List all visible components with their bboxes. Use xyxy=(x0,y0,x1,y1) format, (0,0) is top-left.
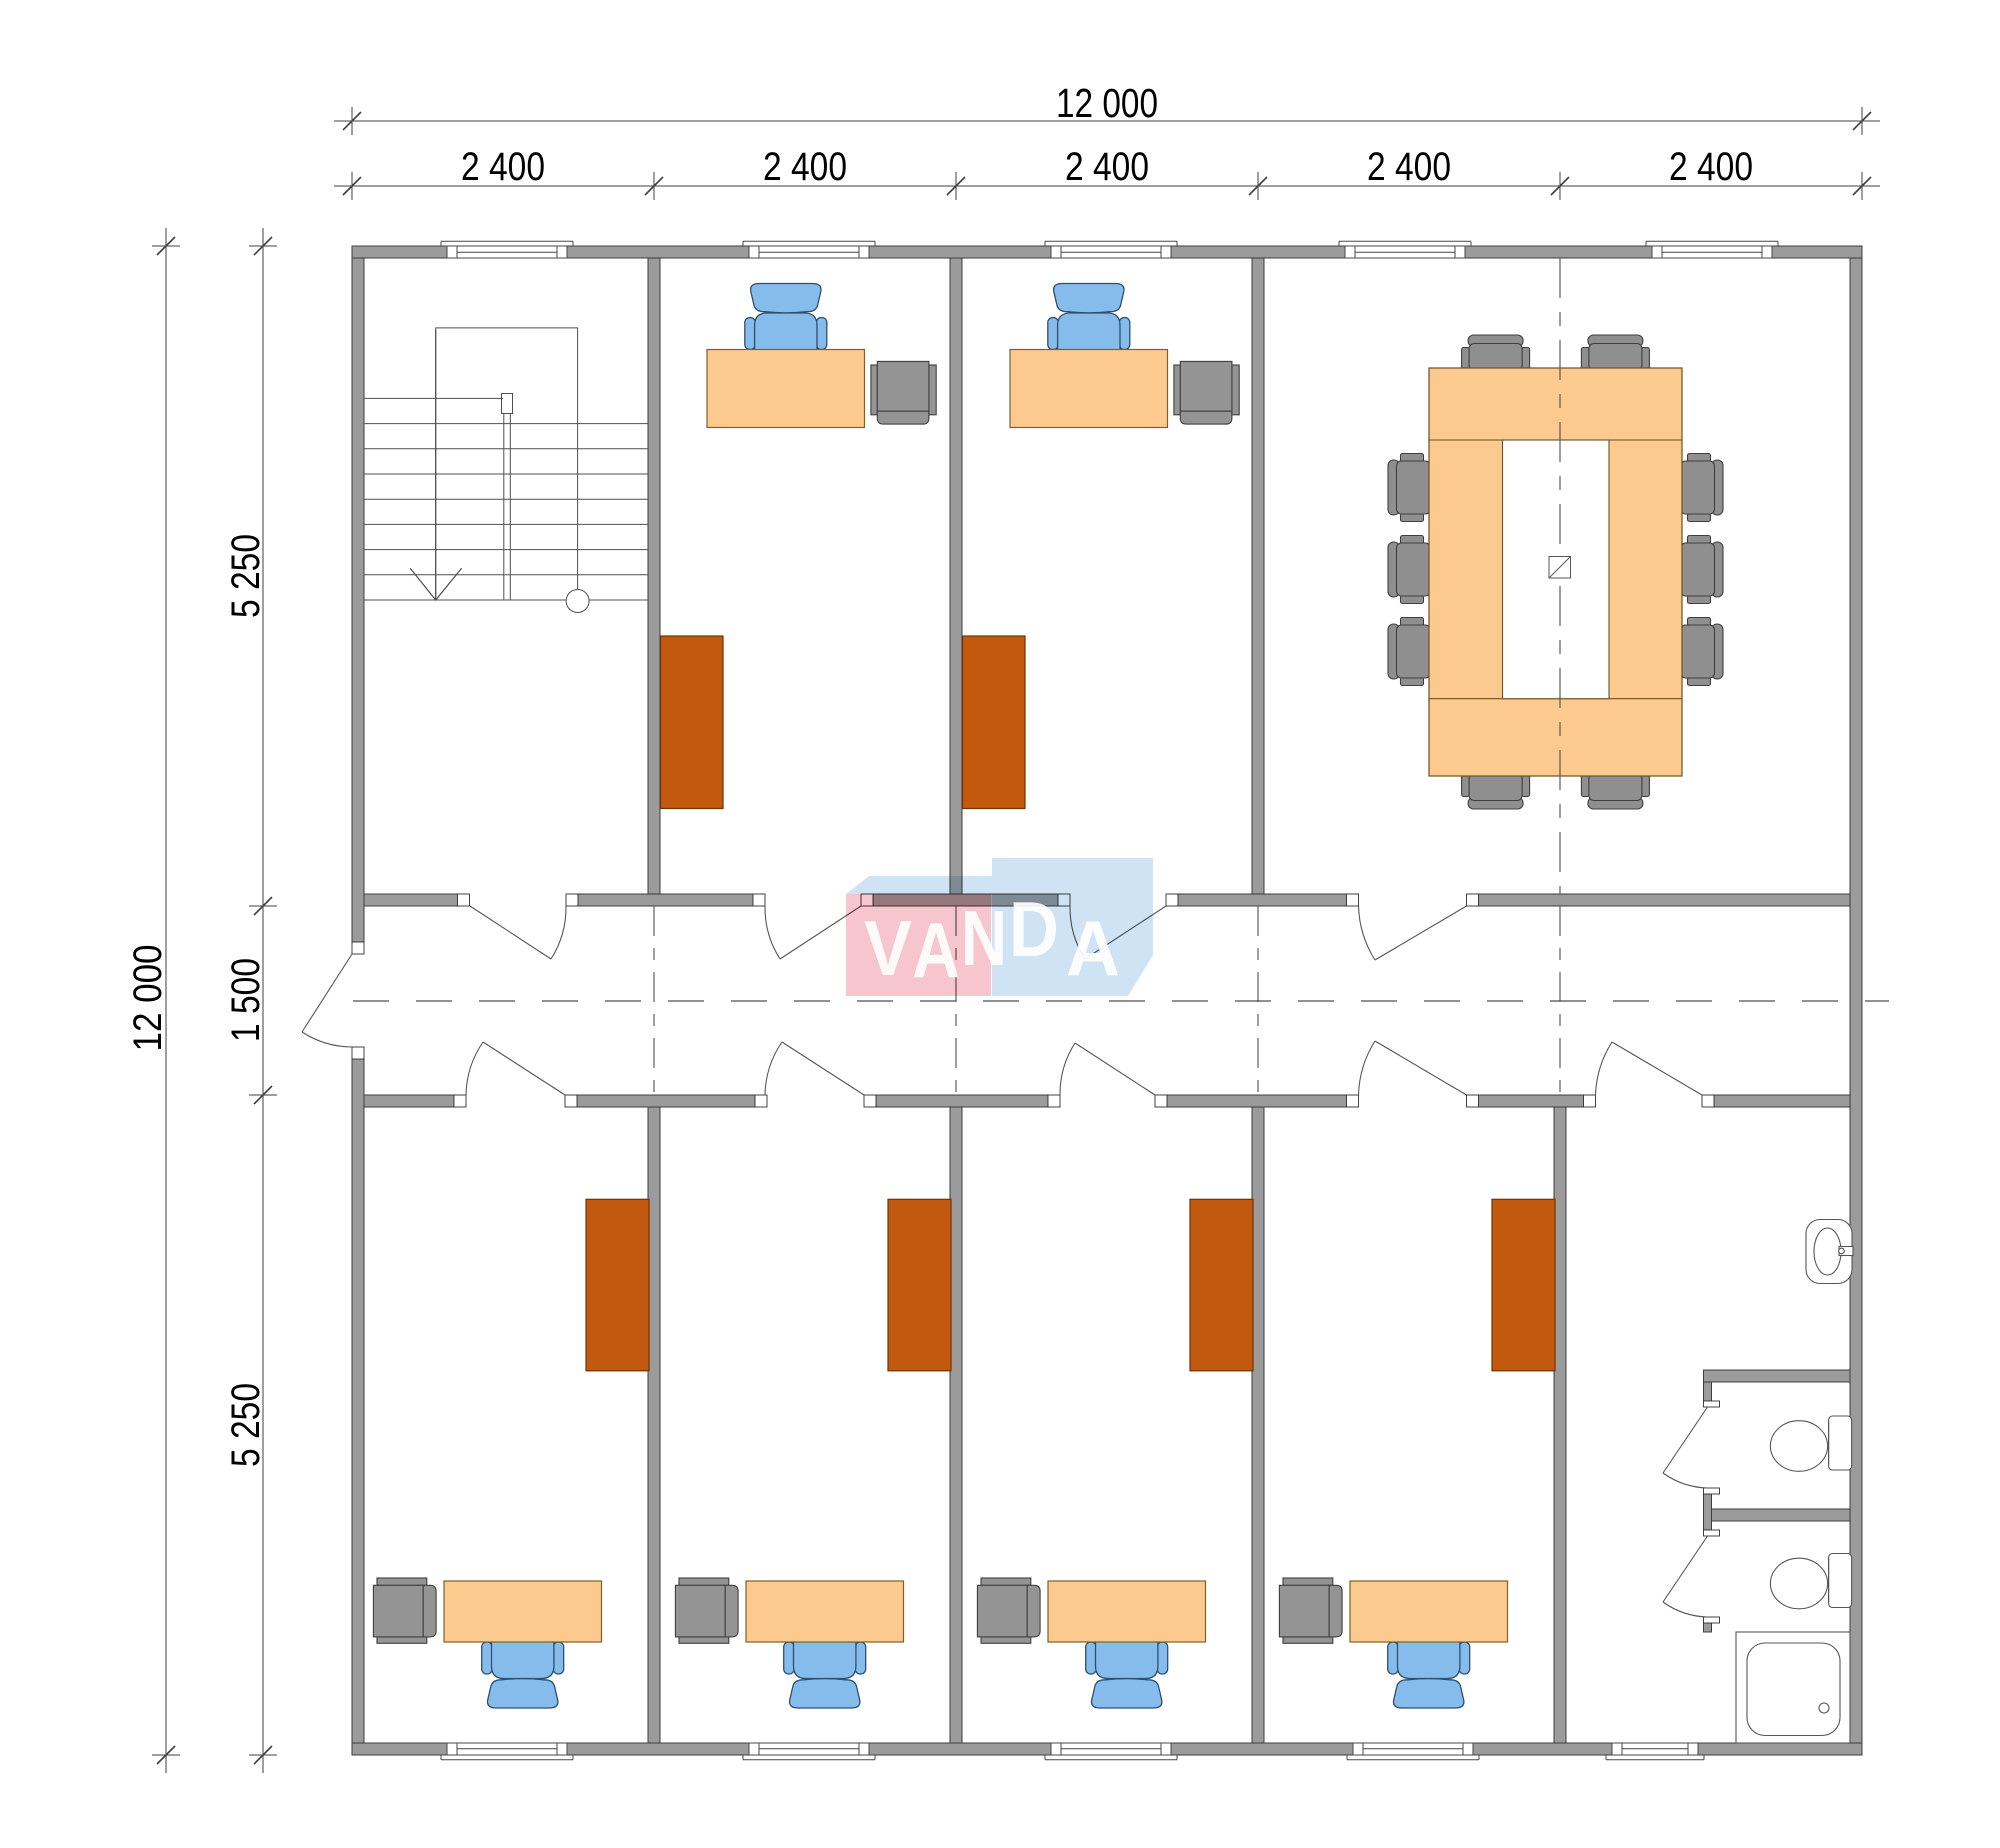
svg-text:A: A xyxy=(1066,904,1120,992)
svg-text:V: V xyxy=(864,904,912,992)
svg-text:5 250: 5 250 xyxy=(224,534,268,618)
svg-text:2 400: 2 400 xyxy=(461,145,545,189)
svg-text:12 000: 12 000 xyxy=(126,945,170,1052)
svg-text:2 400: 2 400 xyxy=(763,145,847,189)
svg-text:12 000: 12 000 xyxy=(1056,80,1158,126)
svg-text:5 250: 5 250 xyxy=(224,1383,268,1467)
svg-text:2 400: 2 400 xyxy=(1065,145,1149,189)
svg-text:2 400: 2 400 xyxy=(1669,145,1753,189)
svg-text:A: A xyxy=(912,906,960,994)
svg-text:N: N xyxy=(961,894,1007,982)
svg-text:D: D xyxy=(1009,885,1059,973)
svg-text:1 500: 1 500 xyxy=(224,958,268,1042)
svg-text:2 400: 2 400 xyxy=(1367,145,1451,189)
